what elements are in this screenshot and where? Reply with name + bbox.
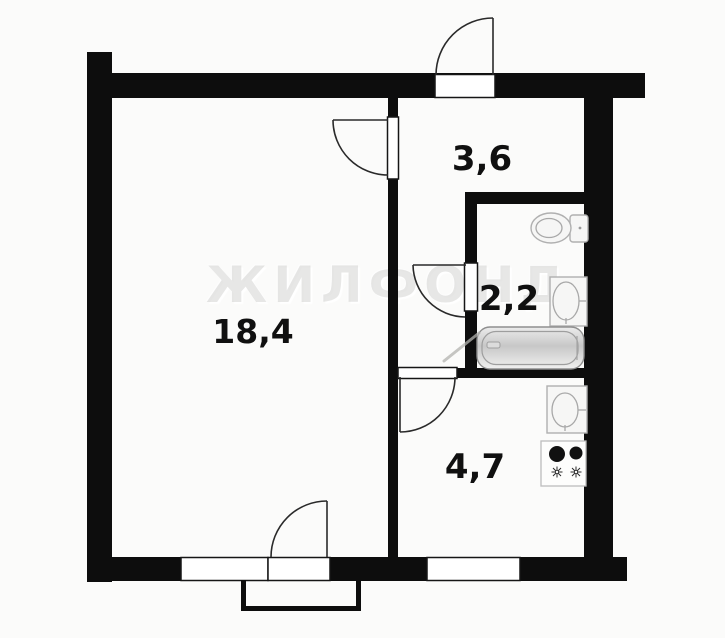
living-room-area-label: 18,4 (212, 312, 293, 351)
floor-plan: ЖИЛФОНД (0, 0, 725, 638)
living-room-door-opening (388, 117, 399, 179)
interior-wall-upper (388, 98, 398, 117)
toilet-icon (531, 213, 588, 243)
bathroom-door-opening (465, 263, 478, 311)
interior-wall-main (388, 179, 398, 557)
entrance-door-opening (435, 75, 495, 98)
bathroom-top-wall (465, 192, 585, 204)
entrance-door-icon (436, 18, 493, 75)
kitchen-window (427, 558, 520, 581)
kitchen-sink-icon (547, 386, 587, 433)
top-wall (87, 73, 645, 98)
stove-icon (541, 441, 586, 486)
balcony-door-opening (268, 558, 330, 581)
bottom-wall-right (520, 557, 627, 581)
bathroom-door-icon (413, 265, 466, 317)
balcony-outline (244, 580, 359, 609)
hallway-area-label: 3,6 (452, 139, 512, 179)
living-room-door-icon (333, 120, 388, 175)
right-wall (584, 73, 613, 581)
kitchen-area-label: 4,7 (445, 447, 505, 487)
floor-plan-drawing: 18,4 3,6 2,2 4,7 (0, 0, 725, 638)
kitchen-door-icon (400, 377, 455, 432)
bottom-wall-left (87, 557, 181, 581)
bathroom-sink-icon (550, 277, 587, 326)
living-room-window (181, 558, 268, 581)
kitchen-door-opening (398, 368, 457, 379)
balcony-door-icon (271, 501, 327, 557)
left-wall (87, 52, 112, 582)
bottom-wall-middle (330, 557, 427, 581)
bathroom-area-label: 2,2 (479, 279, 539, 319)
bathroom-left-wall-upper (465, 192, 477, 263)
